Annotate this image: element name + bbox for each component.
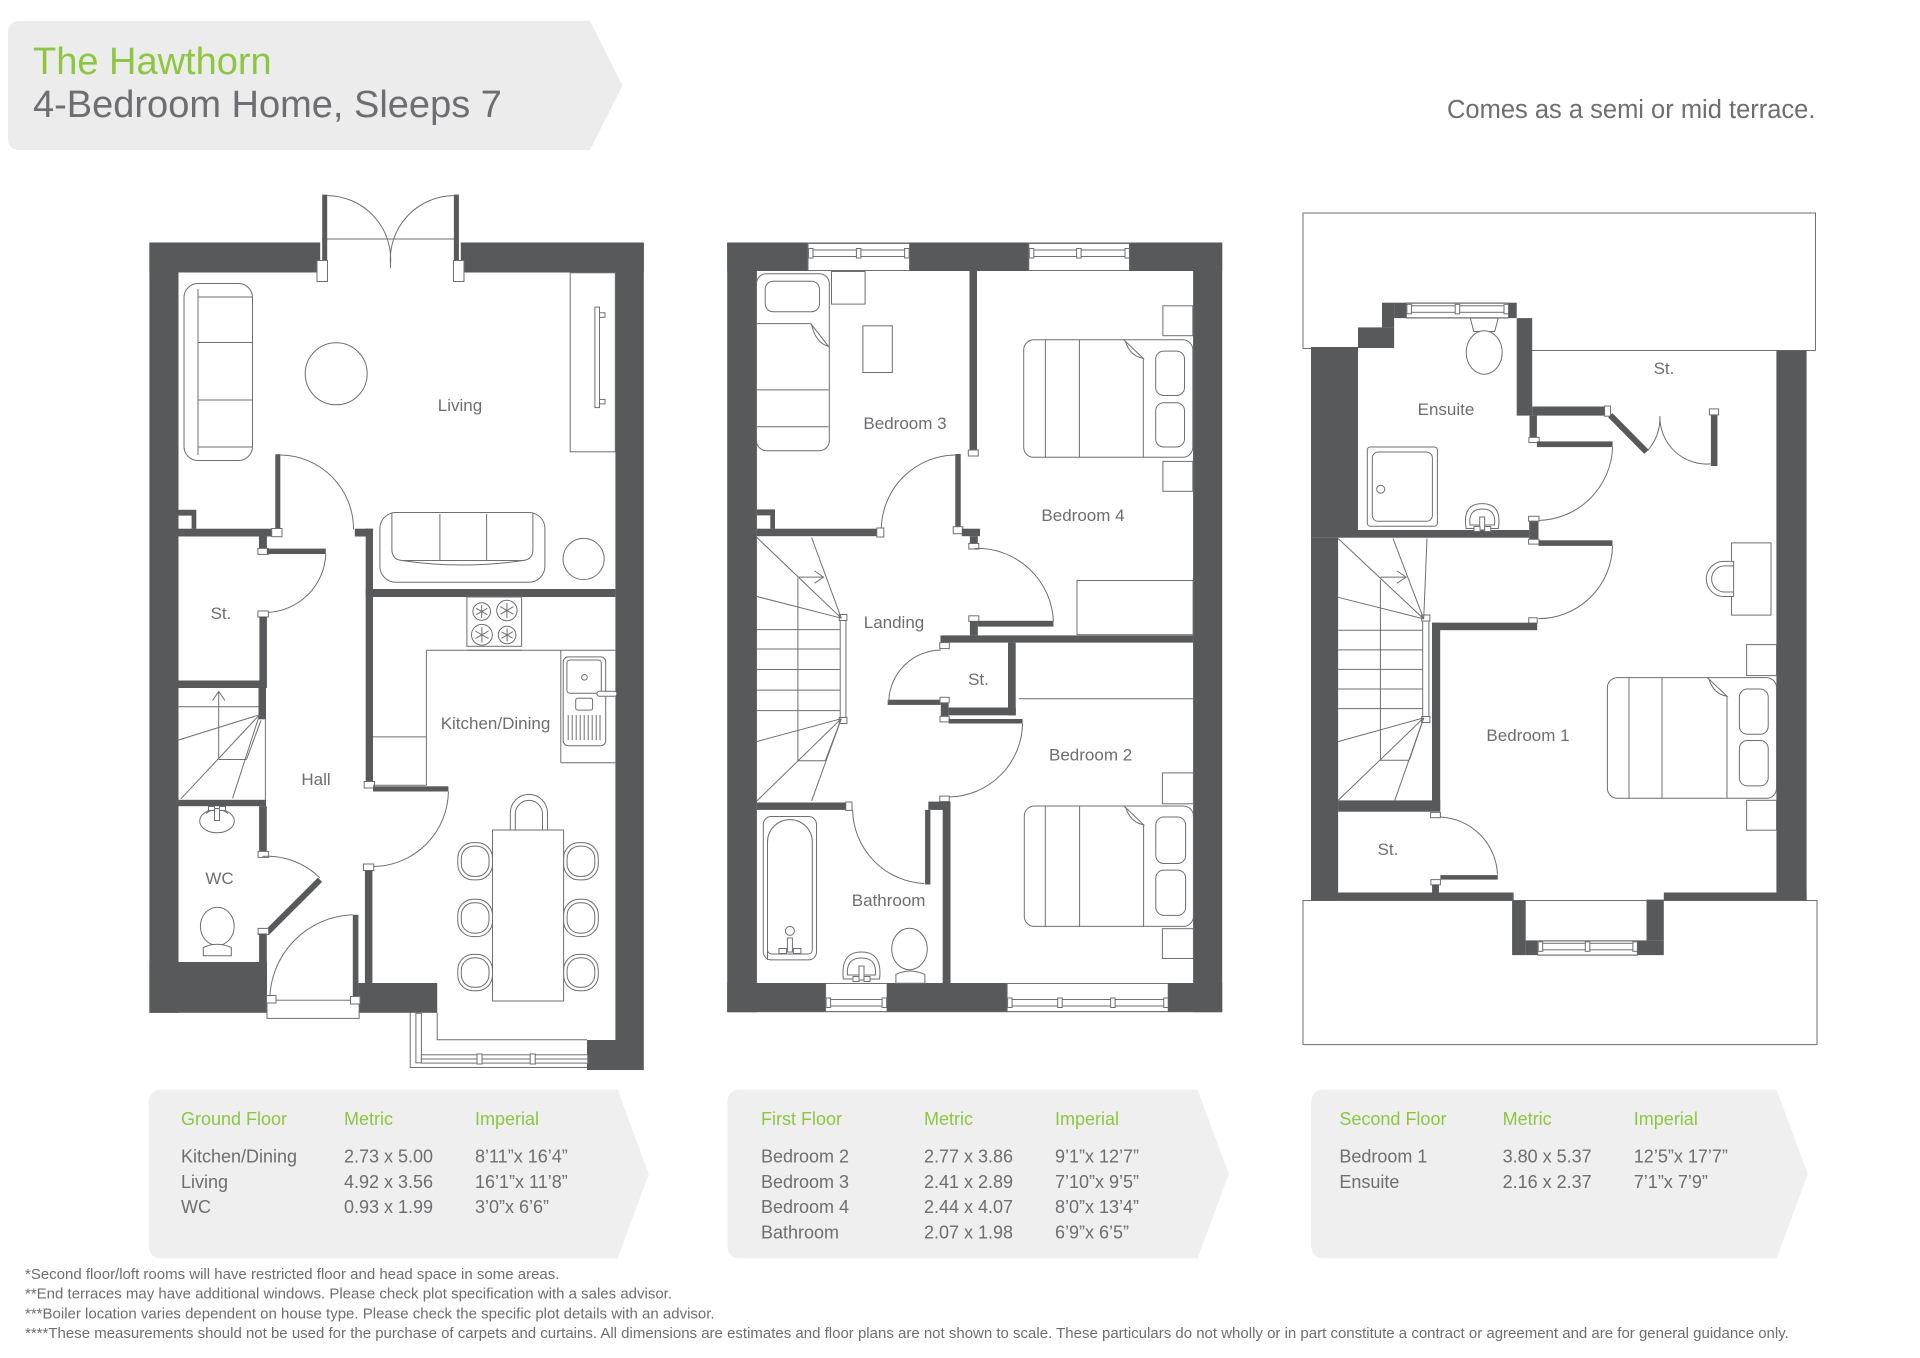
svg-text:Bedroom 3: Bedroom 3 <box>761 1172 849 1192</box>
svg-text:*Second floor/loft rooms will: *Second floor/loft rooms will have restr… <box>25 1266 559 1283</box>
svg-text:***Boiler location varies depe: ***Boiler location varies dependent on h… <box>25 1305 715 1322</box>
svg-text:Bedroom 4: Bedroom 4 <box>1041 506 1124 525</box>
svg-text:2.73 x 5.00: 2.73 x 5.00 <box>344 1146 433 1166</box>
svg-text:Bathroom: Bathroom <box>761 1223 839 1243</box>
svg-text:Bathroom: Bathroom <box>852 891 926 910</box>
svg-text:**End terraces may have additi: **End terraces may have additional windo… <box>25 1286 672 1303</box>
svg-text:Imperial: Imperial <box>475 1109 539 1129</box>
svg-text:Metric: Metric <box>1503 1109 1552 1129</box>
svg-text:Bedroom 3: Bedroom 3 <box>863 414 946 433</box>
svg-text:St.: St. <box>968 670 989 689</box>
svg-text:The Hawthorn: The Hawthorn <box>33 41 272 83</box>
svg-text:2.07 x 1.98: 2.07 x 1.98 <box>924 1223 1013 1243</box>
svg-text:Metric: Metric <box>924 1109 973 1129</box>
svg-text:12’5”x 17’7”: 12’5”x 17’7” <box>1634 1146 1728 1166</box>
svg-text:7’10”x 9’5”: 7’10”x 9’5” <box>1055 1172 1139 1192</box>
svg-text:9’1”x 12’7”: 9’1”x 12’7” <box>1055 1146 1139 1166</box>
svg-text:Ensuite: Ensuite <box>1418 400 1475 419</box>
svg-text:16’1”x 11’8”: 16’1”x 11’8” <box>475 1172 568 1192</box>
svg-text:Kitchen/Dining: Kitchen/Dining <box>181 1146 297 1166</box>
svg-text:Second Floor: Second Floor <box>1339 1109 1446 1129</box>
svg-text:2.77 x 3.86: 2.77 x 3.86 <box>924 1146 1013 1166</box>
svg-text:Bedroom 1: Bedroom 1 <box>1339 1146 1427 1166</box>
svg-text:4-Bedroom Home, Sleeps 7: 4-Bedroom Home, Sleeps 7 <box>33 84 502 126</box>
svg-text:Hall: Hall <box>301 770 330 789</box>
svg-text:Imperial: Imperial <box>1634 1109 1698 1129</box>
svg-text:3’0”x 6’6”: 3’0”x 6’6” <box>475 1197 549 1217</box>
svg-text:Kitchen/Dining: Kitchen/Dining <box>441 714 551 733</box>
svg-text:Comes as a semi or mid terrace: Comes as a semi or mid terrace. <box>1447 96 1815 124</box>
svg-text:St.: St. <box>1378 840 1399 859</box>
svg-text:Ground Floor: Ground Floor <box>181 1109 287 1129</box>
svg-text:2.44 x 4.07: 2.44 x 4.07 <box>924 1197 1013 1217</box>
svg-text:Ensuite: Ensuite <box>1339 1172 1399 1192</box>
svg-text:7’1”x 7’9”: 7’1”x 7’9” <box>1634 1172 1708 1192</box>
svg-text:Metric: Metric <box>344 1109 393 1129</box>
svg-text:3.80 x 5.37: 3.80 x 5.37 <box>1503 1146 1592 1166</box>
svg-text:Landing: Landing <box>864 613 925 632</box>
svg-text:Bedroom 4: Bedroom 4 <box>761 1197 849 1217</box>
svg-text:WC: WC <box>181 1197 211 1217</box>
svg-text:Living: Living <box>438 396 482 415</box>
svg-text:First Floor: First Floor <box>761 1109 842 1129</box>
svg-text:4.92 x 3.56: 4.92 x 3.56 <box>344 1172 433 1192</box>
svg-text:Bedroom 1: Bedroom 1 <box>1486 726 1569 745</box>
svg-text:8’11”x 16’4”: 8’11”x 16’4” <box>475 1146 568 1166</box>
svg-text:****These measurements should: ****These measurements should not be use… <box>25 1325 1789 1342</box>
svg-text:6’9”x 6’5”: 6’9”x 6’5” <box>1055 1223 1129 1243</box>
svg-text:St.: St. <box>1654 359 1675 378</box>
svg-text:Bedroom 2: Bedroom 2 <box>761 1146 849 1166</box>
svg-text:Bedroom 2: Bedroom 2 <box>1049 746 1132 765</box>
svg-text:2.41 x 2.89: 2.41 x 2.89 <box>924 1172 1013 1192</box>
svg-text:WC: WC <box>205 869 233 888</box>
svg-text:0.93 x 1.99: 0.93 x 1.99 <box>344 1197 433 1217</box>
svg-text:Imperial: Imperial <box>1055 1109 1119 1129</box>
svg-text:8’0”x 13’4”: 8’0”x 13’4” <box>1055 1197 1139 1217</box>
svg-text:Living: Living <box>181 1172 228 1192</box>
svg-text:St.: St. <box>211 604 232 623</box>
svg-text:2.16 x 2.37: 2.16 x 2.37 <box>1503 1172 1592 1192</box>
